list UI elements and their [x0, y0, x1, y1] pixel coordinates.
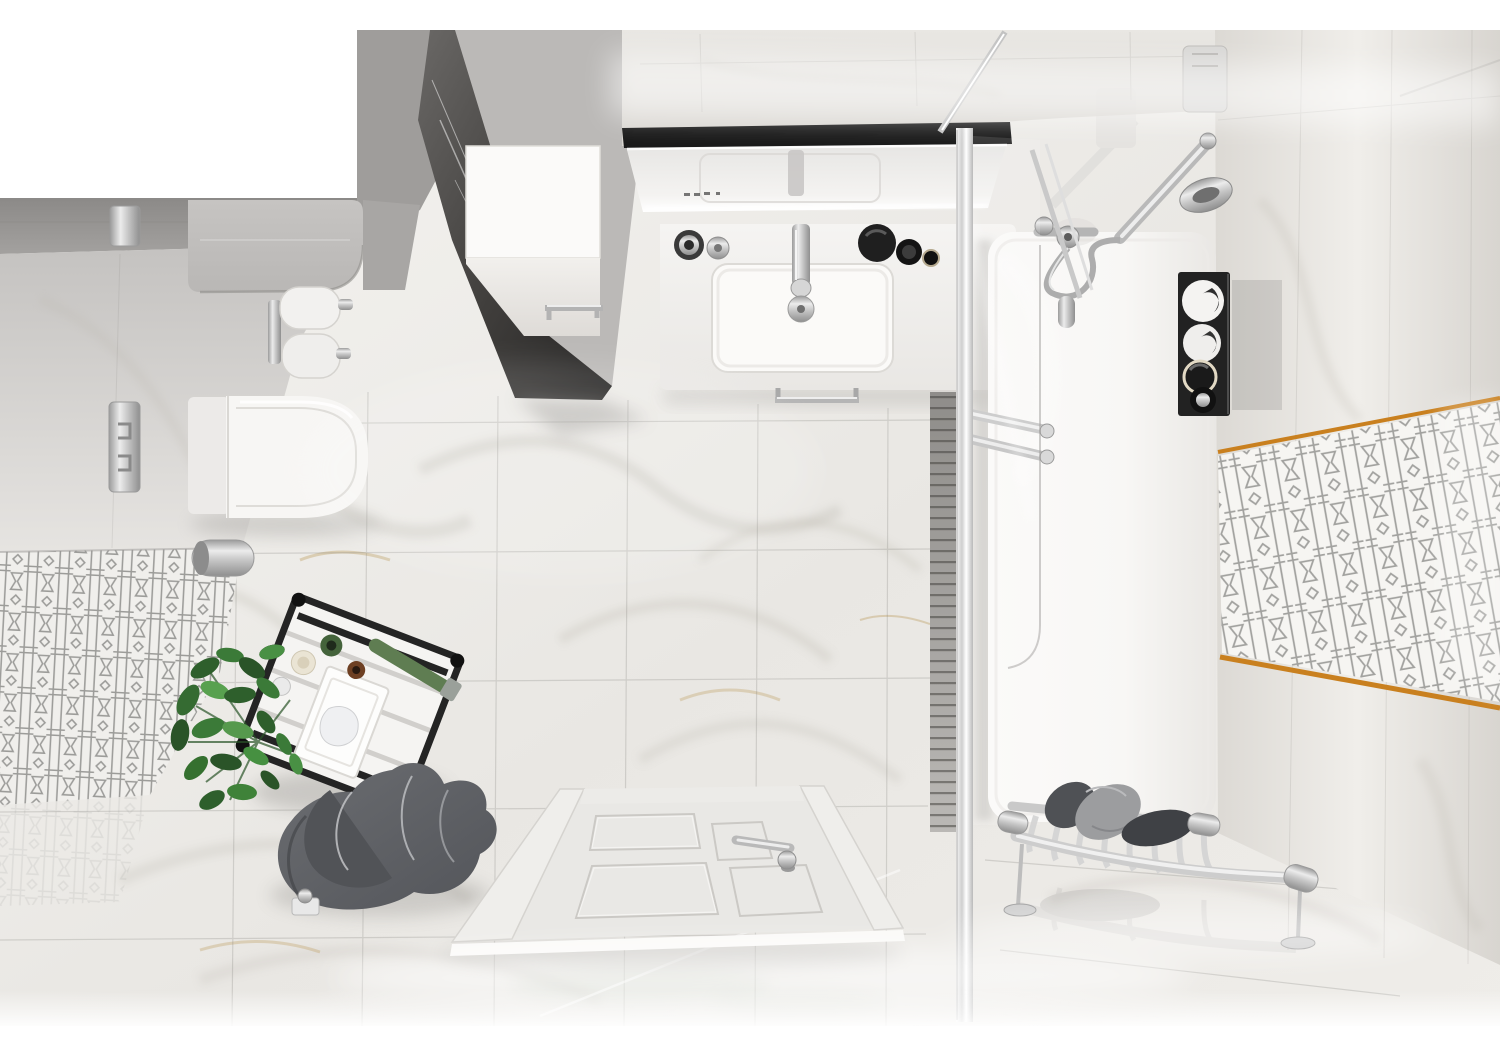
faucet [791, 224, 811, 297]
shelf-reflection [1232, 280, 1282, 410]
mirror [622, 122, 1012, 212]
glass-frame-profile [956, 128, 973, 1022]
bathroom-top-view [0, 0, 1500, 1061]
rolled-towel [1182, 280, 1224, 322]
paper-roll [280, 287, 340, 329]
right-wall [1215, 30, 1500, 965]
paper-roll [282, 334, 340, 378]
flush-plate [109, 402, 140, 492]
brush-holder [192, 540, 254, 576]
accessory-shelf [1178, 272, 1282, 416]
switch-plate [110, 206, 140, 246]
cabinet-top [466, 146, 600, 258]
cistern-ledge [188, 200, 420, 292]
bathroom-render [0, 0, 1500, 1061]
rolled-towel [1183, 324, 1221, 362]
